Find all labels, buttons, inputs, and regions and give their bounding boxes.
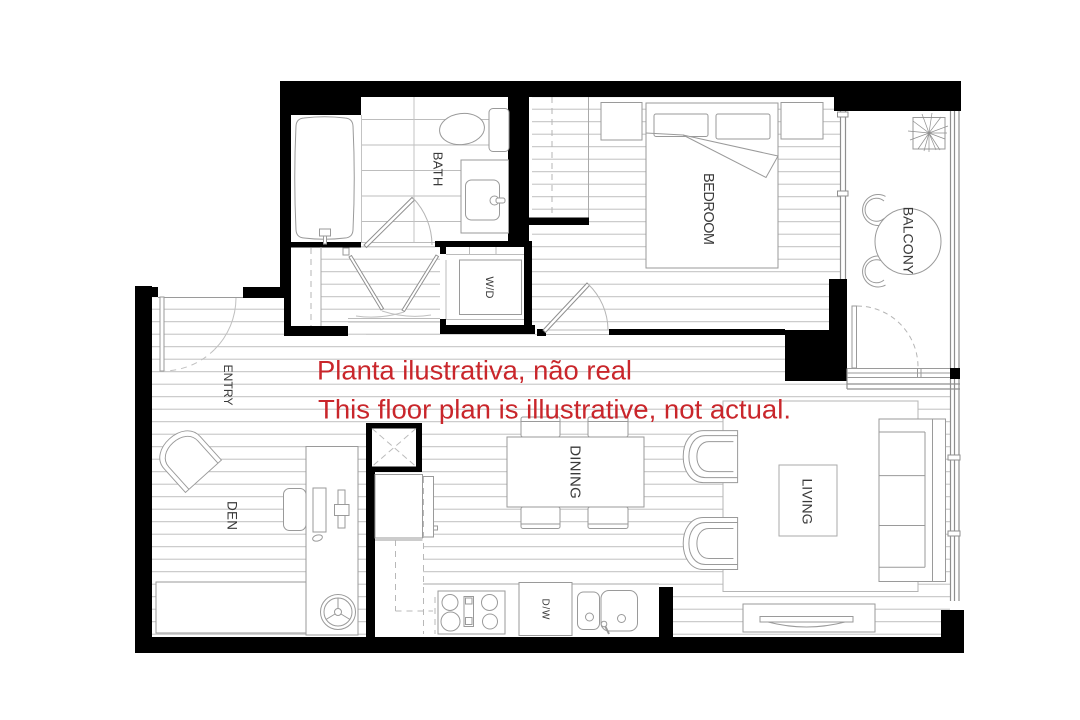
svg-text:BALCONY: BALCONY [901, 207, 917, 275]
svg-text:LIVING: LIVING [800, 479, 816, 525]
svg-text:Planta ilustrativa, não real: Planta ilustrativa, não real [317, 356, 632, 386]
svg-text:This floor plan is illustrativ: This floor plan is illustrative, not act… [318, 395, 791, 425]
svg-text:DINING: DINING [567, 445, 584, 499]
svg-text:D/W: D/W [540, 599, 551, 621]
svg-text:W/D: W/D [483, 277, 495, 299]
svg-text:BEDROOM: BEDROOM [700, 173, 716, 245]
svg-text:BATH: BATH [431, 152, 446, 187]
svg-text:DEN: DEN [225, 501, 240, 530]
svg-text:ENTRY: ENTRY [221, 365, 235, 406]
